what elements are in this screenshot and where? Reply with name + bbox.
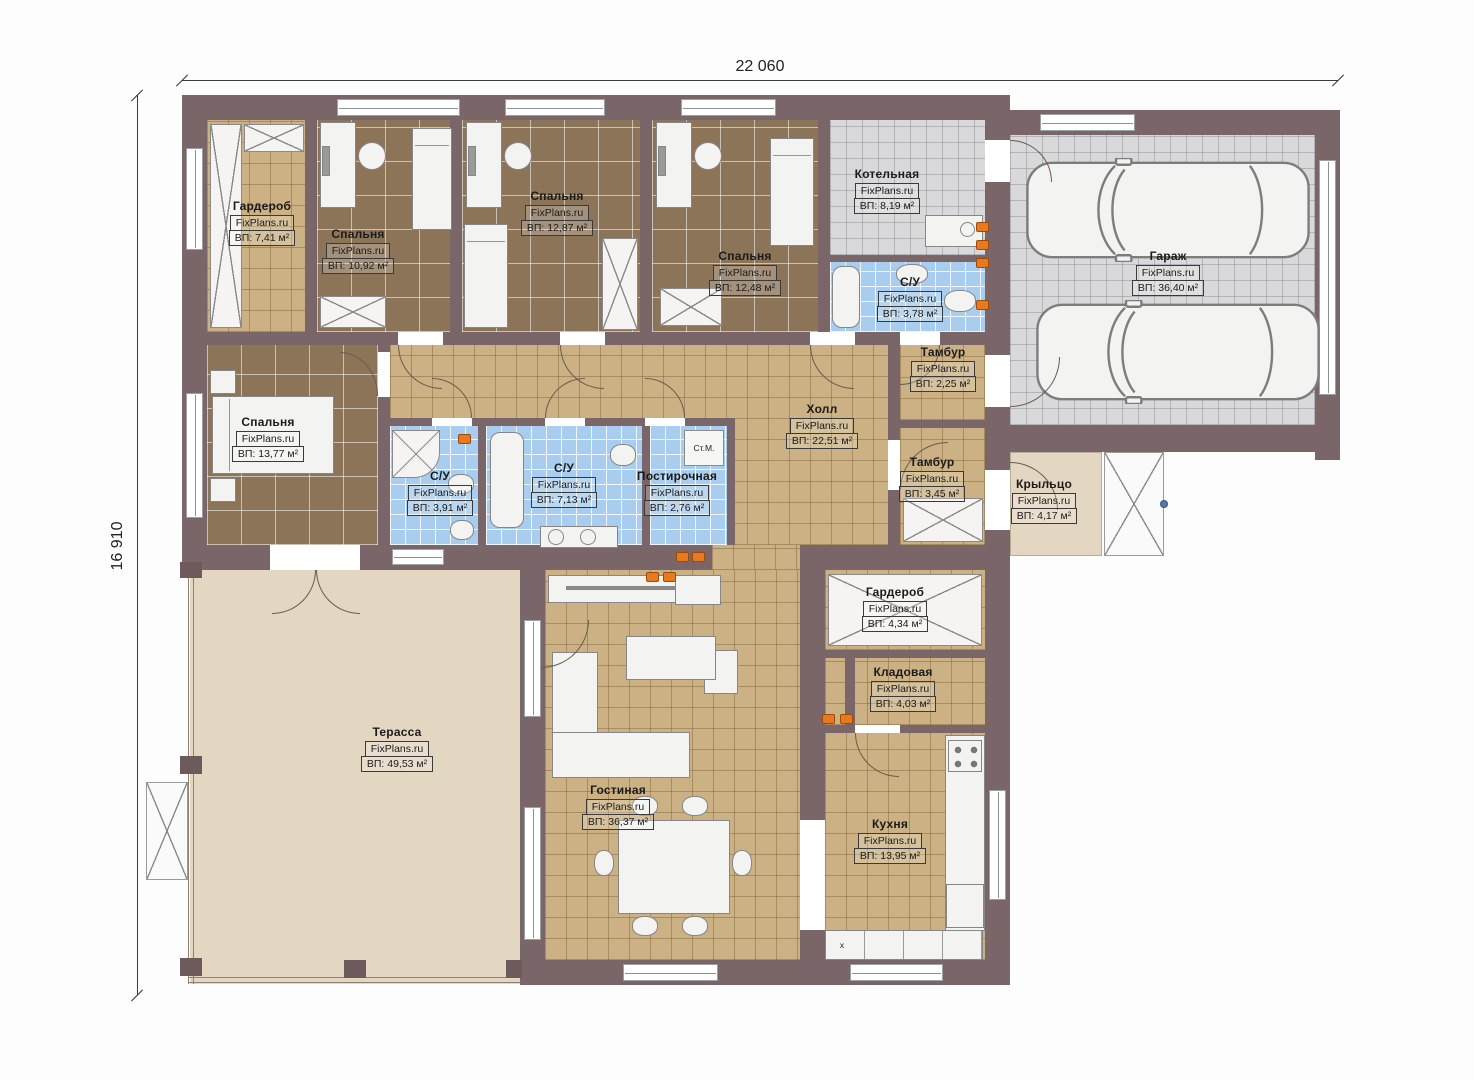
wall-vestibule1-vestibule2: [900, 420, 985, 428]
room-label-porch: Крыльцо FixPlans.ru ВП: 4,17 м²: [989, 478, 1099, 524]
room-label-bedroom4: Спальня FixPlans.ru ВП: 13,77 м²: [213, 416, 323, 462]
stove: [948, 740, 982, 772]
room-area: ВП: 13,95 м²: [854, 848, 926, 864]
wall-wardrobe2-bottom: [825, 650, 985, 658]
outlet-icon: [646, 572, 659, 582]
room-area: ВП: 7,41 м²: [229, 230, 295, 246]
fridge: [946, 884, 984, 928]
room-label-wardrobe1: Гардероб FixPlans.ru ВП: 7,41 м²: [207, 200, 317, 246]
room-label-vestibule1: Тамбур FixPlans.ru ВП: 2,25 м²: [888, 346, 998, 392]
door-opening: [560, 332, 605, 345]
room-name: Тамбур: [877, 456, 987, 470]
room-name: Котельная: [832, 168, 942, 182]
watermark: FixPlans.ru: [236, 431, 301, 447]
window: [337, 99, 460, 116]
watermark: FixPlans.ru: [532, 477, 597, 493]
door-opening: [985, 140, 1010, 182]
terrace-floor: [190, 570, 520, 984]
dining-chair: [732, 850, 752, 876]
sink: [450, 520, 474, 540]
room-area: ВП: 12,87 м²: [521, 220, 593, 236]
room-area: ВП: 10,92 м²: [322, 258, 394, 274]
door-opening: [810, 332, 855, 345]
window: [392, 549, 444, 565]
room-name: Спальня: [303, 228, 413, 242]
wall-boiler-bath1: [830, 255, 985, 262]
terrace-post: [506, 960, 522, 978]
boiler-dial: [960, 222, 975, 237]
steps-marker: [1160, 500, 1168, 508]
watermark: FixPlans.ru: [911, 361, 976, 377]
watermark: FixPlans.ru: [230, 215, 295, 231]
room-label-garage: Гараж FixPlans.ru ВП: 36,40 м²: [1113, 250, 1223, 296]
watermark: FixPlans.ru: [586, 799, 651, 815]
room-label-hall: Холл FixPlans.ru ВП: 22,51 м²: [767, 403, 877, 449]
terrace-post: [180, 562, 202, 578]
sink: [548, 529, 564, 545]
outlet-icon: [976, 300, 989, 310]
closet: [903, 498, 983, 542]
room-area: ВП: 12,48 м²: [709, 280, 781, 296]
room-name: Спальня: [502, 190, 612, 204]
room-area: ВП: 3,78 м²: [877, 306, 943, 322]
room-name: Крыльцо: [989, 478, 1099, 492]
room-area: ВП: 4,34 м²: [862, 616, 928, 632]
washing-machine: Ст.М.: [684, 430, 724, 466]
room-area: ВП: 3,45 м²: [899, 486, 965, 502]
room-area: ВП: 36,40 м²: [1132, 280, 1204, 296]
floor-plan: 22 060 16 910: [0, 0, 1474, 1080]
window: [186, 393, 203, 518]
window: [186, 148, 203, 250]
coffee-table: [626, 636, 716, 680]
room-name: Кухня: [835, 818, 945, 832]
watermark: FixPlans.ru: [1012, 493, 1077, 509]
watermark: FixPlans.ru: [855, 183, 920, 199]
room-name: Терасса: [342, 726, 452, 740]
outlet-icon: [458, 434, 471, 444]
closet: [602, 238, 638, 330]
wall-right-lower: [985, 570, 1010, 985]
wall-middle-bottom: [182, 545, 712, 570]
room-label-bedroom2: Спальня FixPlans.ru ВП: 12,87 м²: [502, 190, 612, 236]
watermark: FixPlans.ru: [713, 265, 778, 281]
watermark: FixPlans.ru: [326, 243, 391, 259]
door-opening: [545, 418, 585, 426]
room-area: ВП: 7,13 м²: [531, 492, 597, 508]
dimension-height-label: 16 910: [109, 486, 127, 606]
room-label-terrace: Терасса FixPlans.ru ВП: 49,53 м²: [342, 726, 452, 772]
bed: [770, 138, 814, 246]
room-name: С/У: [509, 462, 619, 476]
watermark: FixPlans.ru: [863, 601, 928, 617]
nightstand: [210, 478, 236, 502]
monitor: [322, 146, 330, 176]
window: [681, 99, 776, 116]
dining-chair: [632, 916, 658, 936]
room-name: Тамбур: [888, 346, 998, 360]
room-label-bath2: С/У FixPlans.ru ВП: 3,91 м²: [385, 470, 495, 516]
outlet-icon: [822, 714, 835, 724]
chair: [504, 142, 532, 170]
terrace-post: [344, 960, 366, 978]
dimension-line-left: [137, 95, 138, 995]
wall-wardrobe2-top: [825, 545, 985, 570]
room-name: Постирочная: [622, 470, 732, 484]
bed: [412, 128, 452, 230]
wall-pantry-bottom: [825, 725, 985, 733]
room-area: ВП: 2,76 м²: [644, 500, 710, 516]
watermark: FixPlans.ru: [645, 485, 710, 501]
hall-passage-floor: [712, 545, 800, 570]
outlet-icon: [692, 552, 705, 562]
bed: [464, 224, 508, 328]
outlet-icon: [663, 572, 676, 582]
dining-chair: [594, 850, 614, 876]
terrace-double-door-opening: [270, 545, 360, 570]
porch-steps: [1104, 452, 1164, 556]
room-label-vestibule2: Тамбур FixPlans.ru ВП: 3,45 м²: [877, 456, 987, 502]
door-opening: [900, 332, 940, 345]
room-label-boiler: Котельная FixPlans.ru ВП: 8,19 м²: [832, 168, 942, 214]
watermark: FixPlans.ru: [871, 681, 936, 697]
chair: [358, 142, 386, 170]
door-opening: [645, 418, 685, 426]
window: [989, 790, 1006, 900]
room-name: Холл: [767, 403, 877, 417]
terrace-post: [180, 756, 202, 774]
room-area: ВП: 49,53 м²: [361, 756, 433, 772]
closet: [320, 296, 386, 328]
watermark: FixPlans.ru: [900, 471, 965, 487]
room-area: ВП: 13,77 м²: [232, 446, 304, 462]
dimension-width-label: 22 060: [182, 58, 1338, 76]
car-top-view: [1032, 300, 1324, 404]
dining-chair: [682, 796, 708, 816]
window: [505, 99, 605, 116]
room-label-laundry: Постирочная FixPlans.ru ВП: 2,76 м²: [622, 470, 732, 516]
window: [850, 964, 943, 981]
room-area: ВП: 4,03 м²: [870, 696, 936, 712]
sink-section-mark: x: [830, 934, 854, 956]
terrace-edge-left: [188, 570, 194, 984]
door-opening: [855, 725, 900, 733]
terrace-steps: [146, 782, 188, 880]
watermark: FixPlans.ru: [365, 741, 430, 757]
watermark: FixPlans.ru: [1136, 265, 1201, 281]
door-opening: [378, 352, 390, 397]
cabinet: [675, 575, 721, 605]
room-area: ВП: 3,91 м²: [407, 500, 473, 516]
window: [623, 964, 718, 981]
room-label-pantry: Кладовая FixPlans.ru ВП: 4,03 м²: [848, 666, 958, 712]
room-name: Кладовая: [848, 666, 958, 680]
room-name: Гараж: [1113, 250, 1223, 264]
room-name: С/У: [385, 470, 495, 484]
door-opening: [398, 332, 443, 345]
room-area: ВП: 22,51 м²: [786, 433, 858, 449]
room-name: Спальня: [213, 416, 323, 430]
watermark: FixPlans.ru: [858, 833, 923, 849]
room-label-living: Гостиная FixPlans.ru ВП: 36,37 м²: [563, 784, 673, 830]
outlet-icon: [976, 222, 989, 232]
outlet-icon: [976, 258, 989, 268]
watermark: FixPlans.ru: [525, 205, 590, 221]
outlet-icon: [676, 552, 689, 562]
window: [524, 807, 541, 940]
room-name: Гостиная: [563, 784, 673, 798]
room-label-kitchen: Кухня FixPlans.ru ВП: 13,95 м²: [835, 818, 945, 864]
terrace-door: [524, 620, 541, 717]
chair: [694, 142, 722, 170]
room-area: ВП: 8,19 м²: [854, 198, 920, 214]
terrace-post: [180, 958, 202, 976]
room-name: С/У: [855, 276, 965, 290]
wall-garage-bottom: [985, 425, 1340, 452]
room-area: ВП: 4,17 м²: [1011, 508, 1077, 524]
room-name: Гардероб: [207, 200, 317, 214]
room-label-wardrobe2: Гардероб FixPlans.ru ВП: 4,34 м²: [840, 586, 950, 632]
watermark: FixPlans.ru: [790, 418, 855, 434]
nightstand: [210, 370, 236, 394]
room-name: Гардероб: [840, 586, 950, 600]
wall-bedroom3-boiler: [818, 120, 830, 332]
outlet-icon: [976, 240, 989, 250]
sofa: [552, 732, 690, 778]
monitor: [658, 146, 666, 176]
room-label-bath3: С/У FixPlans.ru ВП: 7,13 м²: [509, 462, 619, 508]
room-area: ВП: 2,25 м²: [910, 376, 976, 392]
watermark: FixPlans.ru: [878, 291, 943, 307]
room-label-bedroom1: Спальня FixPlans.ru ВП: 10,92 м²: [303, 228, 413, 274]
car-top-view: [1022, 158, 1314, 262]
dimension-line-top: [182, 80, 1338, 81]
monitor: [468, 146, 476, 176]
dining-table: [618, 820, 730, 914]
room-name: Спальня: [690, 250, 800, 264]
dining-chair: [682, 916, 708, 936]
outlet-icon: [840, 714, 853, 724]
room-label-bedroom3: Спальня FixPlans.ru ВП: 12,48 м²: [690, 250, 800, 296]
door-opening: [432, 418, 472, 426]
room-label-bath1: С/У FixPlans.ru ВП: 3,78 м²: [855, 276, 965, 322]
sink: [580, 529, 596, 545]
closet: [244, 124, 304, 152]
watermark: FixPlans.ru: [408, 485, 473, 501]
passage-opening: [800, 820, 825, 930]
window: [1040, 114, 1135, 131]
room-area: ВП: 36,37 м²: [582, 814, 654, 830]
wall-bedroom2-bedroom3: [640, 120, 652, 332]
